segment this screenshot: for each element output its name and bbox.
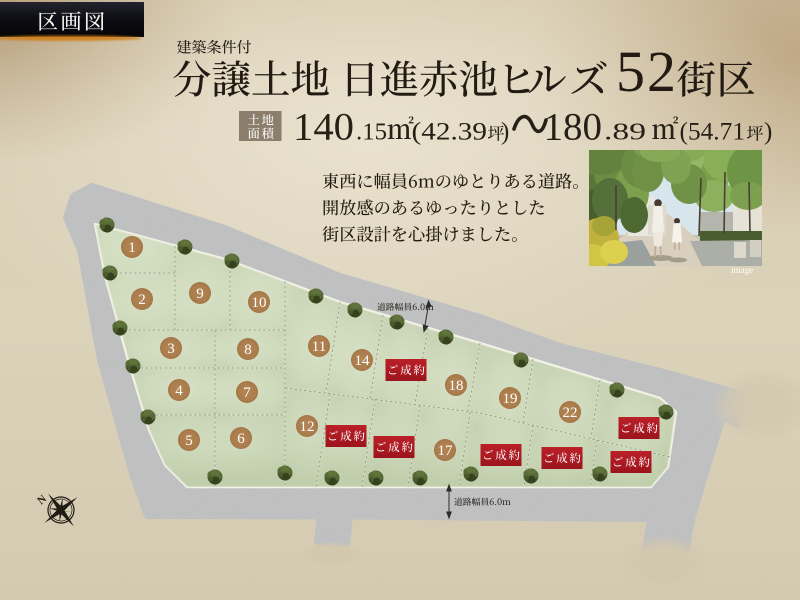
svg-text:7: 7 (243, 385, 251, 401)
svg-text:19: 19 (503, 391, 518, 407)
svg-text:5: 5 (185, 433, 193, 449)
svg-text:22: 22 (563, 405, 578, 421)
svg-text:52: 52 (616, 39, 678, 104)
svg-text:14: 14 (355, 353, 371, 369)
svg-text:6: 6 (237, 431, 245, 447)
svg-text:10: 10 (252, 295, 267, 311)
svg-text:1: 1 (128, 240, 136, 256)
svg-text:image: image (731, 265, 753, 275)
svg-text:4: 4 (175, 383, 183, 399)
svg-text:180: 180 (544, 106, 603, 149)
svg-text:): ) (501, 119, 509, 146)
svg-text:8: 8 (244, 342, 252, 358)
svg-text:N: N (35, 493, 49, 507)
svg-text:.89: .89 (604, 120, 646, 146)
svg-text:2: 2 (138, 292, 146, 308)
svg-text:17: 17 (438, 443, 454, 459)
svg-text:(42.39: (42.39 (412, 119, 488, 146)
svg-text:18: 18 (449, 378, 464, 394)
svg-text:12: 12 (300, 419, 315, 435)
svg-text:3: 3 (167, 341, 175, 357)
svg-text:.15: .15 (356, 120, 387, 146)
svg-text:140: 140 (293, 106, 354, 149)
svg-text:11: 11 (312, 339, 326, 355)
svg-text:): ) (764, 119, 772, 146)
svg-text:9: 9 (196, 286, 204, 302)
svg-text:(54.71: (54.71 (680, 119, 746, 146)
